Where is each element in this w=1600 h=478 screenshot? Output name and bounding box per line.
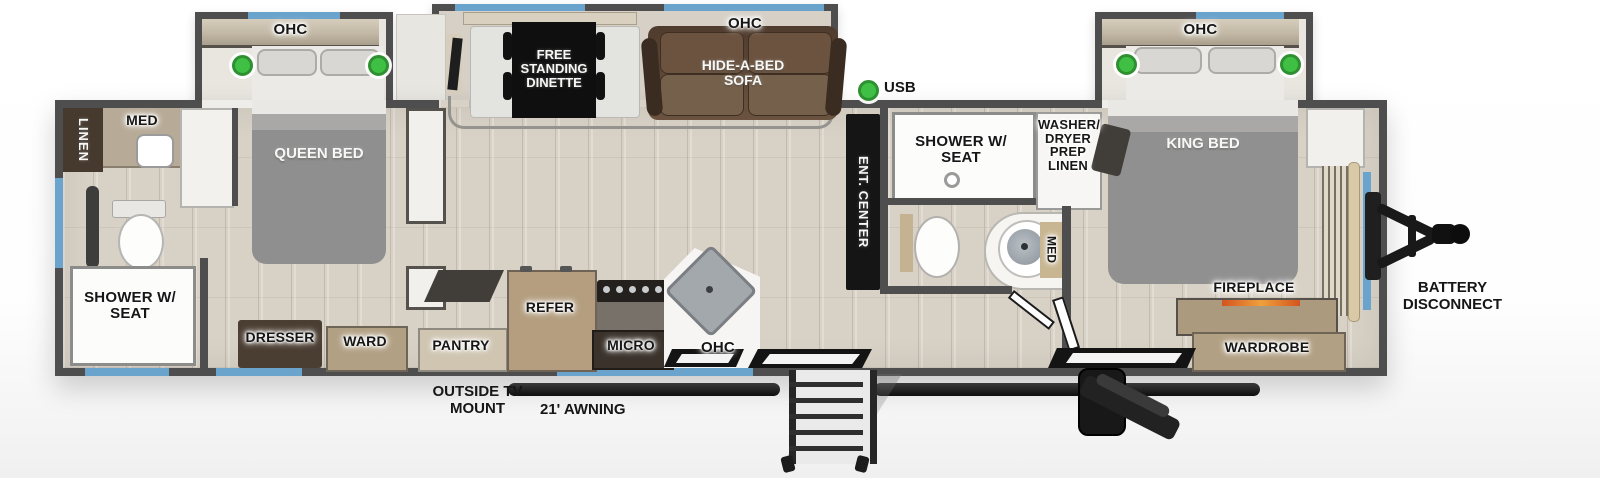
ent-center-label: ENT. CENTER (856, 156, 870, 248)
shower-label: SHOWER W/ SEAT (78, 290, 182, 322)
awning-label: 21' AWNING (540, 402, 660, 419)
step-rung (789, 414, 863, 419)
refrigerator (507, 270, 597, 372)
window-accent (455, 4, 585, 11)
step-rung (789, 382, 863, 387)
mid-shower-label: SHOWER W/ SEAT (908, 134, 1014, 166)
slide-sidewall (396, 14, 446, 104)
dresser-label: DRESSER (238, 330, 322, 345)
window-accent (85, 368, 169, 376)
sofa-label: HIDE-A-BED SOFA (688, 58, 798, 88)
sink-drain (706, 286, 713, 293)
washer-dryer-label: WASHER/ DRYER PREP LINEN (1038, 118, 1098, 173)
rv-floorplan: LINEN ENT. CENTER USB (0, 0, 1600, 478)
wall (232, 108, 238, 206)
linen-cabinet: LINEN (63, 108, 103, 172)
awning-tube (508, 383, 780, 396)
shower-door-panel (86, 186, 99, 268)
king-pillow (1208, 47, 1276, 74)
front-closet (1306, 108, 1365, 168)
rear-toilet (118, 214, 164, 270)
wall (880, 286, 1012, 294)
refrigerator-handle (560, 266, 572, 272)
pantry-label: PANTRY (418, 338, 504, 353)
window-accent (55, 178, 63, 268)
med-label: MED (1045, 236, 1058, 263)
step-rung (789, 430, 863, 435)
entry-landing-floor (762, 354, 860, 364)
ohc-label: OHC (202, 22, 379, 38)
battery-disconnect-label: BATTERY DISCONNECT (1390, 280, 1515, 314)
step-rung (789, 446, 863, 451)
wall (888, 198, 1036, 205)
range-burner (603, 286, 610, 293)
blinds-rod (1348, 162, 1360, 322)
usb-indicator-icon (858, 80, 879, 101)
front-entry-floor (1066, 353, 1182, 363)
fireplace-flame (1222, 300, 1300, 306)
window-accent (216, 368, 302, 376)
refer-label: REFER (507, 300, 593, 315)
sink-drain (1021, 243, 1028, 250)
ward-label: WARD (326, 334, 404, 349)
window-accent (664, 4, 824, 11)
mid-toilet-tank (900, 214, 913, 272)
queen-bed-label: QUEEN BED (252, 146, 386, 162)
king-bed (1108, 100, 1298, 284)
ohc-label: OHC (680, 340, 756, 356)
queen-bed (252, 100, 386, 264)
entertainment-center: ENT. CENTER (846, 114, 880, 290)
wardrobe-label: WARDROBE (1192, 340, 1342, 355)
range-body (597, 302, 669, 330)
awning-tube (874, 383, 1260, 396)
led-reading-light (1280, 54, 1301, 75)
refrigerator-handle (520, 266, 532, 272)
wall-column (406, 108, 446, 224)
rear-bath-wardrobe (180, 108, 234, 208)
mid-toilet (914, 216, 960, 278)
window-accent (248, 12, 340, 19)
window-accent (1196, 12, 1284, 19)
king-bed-label: KING BED (1108, 136, 1298, 152)
queen-pillow (257, 49, 317, 76)
dinette-chair (596, 32, 605, 60)
king-pillow (1134, 47, 1202, 74)
led-reading-light (232, 55, 253, 76)
med-label: MED (103, 113, 181, 128)
wall (200, 258, 208, 368)
usb-label: USB (884, 80, 934, 97)
ohc-label: OHC (1102, 22, 1299, 38)
outside-tv-mount-label: OUTSIDE TV MOUNT (425, 384, 530, 418)
range-burner (642, 286, 649, 293)
step-foot (854, 455, 870, 473)
dinette-chair (503, 72, 512, 100)
led-reading-light (1116, 54, 1137, 75)
range-burner (629, 286, 636, 293)
range-burner (655, 286, 662, 293)
dinette-chair (596, 72, 605, 100)
dinette-chair (503, 32, 512, 60)
dinette-label: FREE STANDING DINETTE (512, 48, 596, 90)
hitch-jack (1408, 215, 1416, 257)
fireplace-label: FIREPLACE (1194, 280, 1314, 295)
hitch-coupler-knob (1450, 224, 1470, 244)
micro-label: MICRO (592, 338, 670, 353)
shower-drain (944, 172, 960, 188)
led-reading-light (368, 55, 389, 76)
step-rung (789, 398, 863, 403)
med-cabinet-mid: MED (1040, 222, 1062, 278)
linen-label: LINEN (76, 118, 90, 162)
rear-bath-sink (136, 134, 174, 168)
wall (880, 108, 888, 294)
range-burner (616, 286, 623, 293)
ohc-label: OHC (695, 16, 795, 32)
